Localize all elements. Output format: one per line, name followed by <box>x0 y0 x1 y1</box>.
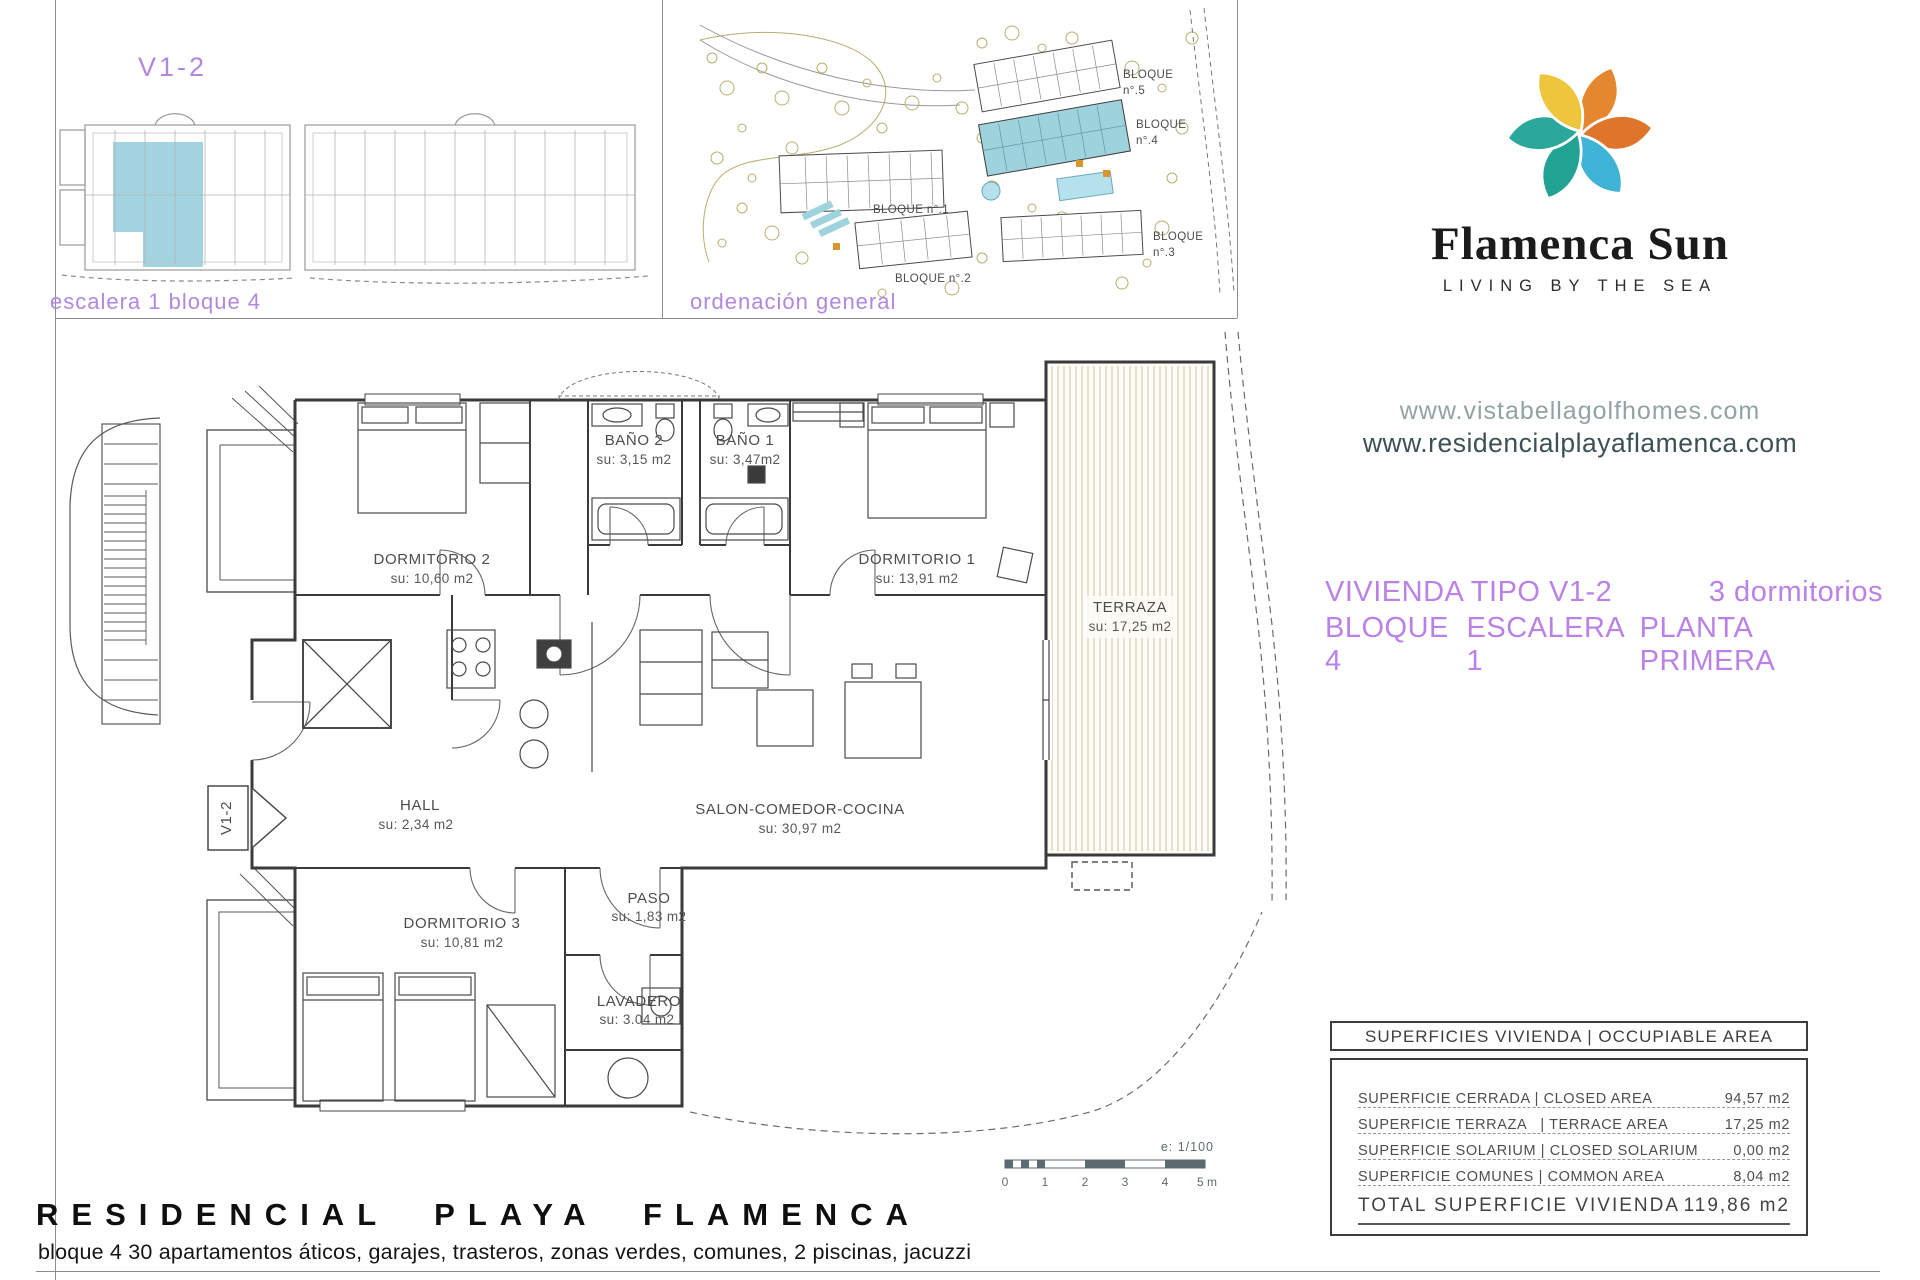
key-plan-caption: escalera 1 bloque 4 <box>50 289 261 315</box>
brand-tagline: LIVING BY THE SEA <box>1330 277 1830 296</box>
table-row: SUPERFICIE CERRADA | CLOSED AREA 94,57 m… <box>1358 1082 1790 1108</box>
total-label: TOTAL SUPERFICIE VIVIENDA <box>1358 1195 1680 1217</box>
row-value: 0,00 m2 <box>1733 1143 1790 1159</box>
scale-tick-0: 0 <box>1002 1175 1009 1189</box>
stairwell <box>70 418 160 724</box>
site-block3-num: n°.3 <box>1153 247 1175 259</box>
room-hall-name: HALL <box>400 797 440 814</box>
scale-tick-4: 4 <box>1162 1175 1169 1189</box>
room-salon-area: su: 30,97 m2 <box>759 821 842 836</box>
entrance-label: V1-2 <box>218 801 235 835</box>
brand-name: Flamenca Sun <box>1330 217 1830 271</box>
key-plan <box>60 114 648 283</box>
site-block5-label: BLOQUE <box>1123 69 1173 81</box>
row-label: SUPERFICIE TERRAZA | TERRACE AREA <box>1358 1117 1668 1133</box>
total-value: 119,86 m2 <box>1684 1195 1790 1217</box>
unit-bedrooms: 3 dormitorios <box>1709 576 1883 609</box>
room-dormitorio1-name: DORMITORIO 1 <box>859 551 976 568</box>
url-vistabella: www.vistabellagolfhomes.com <box>1330 397 1830 426</box>
row-value: 8,04 m2 <box>1733 1169 1790 1185</box>
plan-sheet: BLOQUE n°.5 BLOQUE n°.4 BLOQUE n°.3 BLOQ… <box>0 0 1920 1280</box>
url-residencial: www.residencialplayaflamenca.com <box>1330 428 1830 459</box>
website-links: www.vistabellagolfhomes.com www.residenc… <box>1330 397 1830 459</box>
project-title: RESIDENCIAL PLAYA FLAMENCA <box>36 1197 921 1233</box>
room-bano1-area: su: 3,47m2 <box>710 452 781 467</box>
door-swings <box>252 507 875 1005</box>
room-dormitorio2-name: DORMITORIO 2 <box>374 551 491 568</box>
table-total-row: TOTAL SUPERFICIE VIVIENDA 119,86 m2 <box>1358 1195 1790 1225</box>
balconies <box>207 386 298 1100</box>
unit-info-block: VIVIENDA TIPO V1-2 3 dormitorios BLOQUE … <box>1325 576 1883 678</box>
site-block-4-highlighted <box>979 100 1131 176</box>
room-paso-name: PASO <box>628 890 671 907</box>
row-label: SUPERFICIE CERRADA | CLOSED AREA <box>1358 1091 1653 1107</box>
light-shaft <box>303 640 391 728</box>
brand-block: Flamenca Sun LIVING BY THE SEA <box>1330 58 1830 296</box>
room-lavadero-name: LAVADERO <box>597 993 681 1010</box>
table-row: SUPERFICIE TERRAZA | TERRACE AREA 17,25 … <box>1358 1108 1790 1134</box>
row-value: 17,25 m2 <box>1725 1117 1790 1133</box>
row-label: SUPERFICIE SOLARIUM | CLOSED SOLARIUM <box>1358 1143 1698 1159</box>
site-block4-label: BLOQUE <box>1136 119 1186 131</box>
floor-plan-drawing: V1-2 DORMITORIO 2 su: 10,60 m2 BAÑO 2 su… <box>70 332 1286 1189</box>
site-block4-num: n°.4 <box>1136 135 1158 147</box>
room-terraza-name: TERRAZA <box>1093 599 1167 616</box>
scale-tick-1: 1 <box>1042 1175 1049 1189</box>
flamenca-sun-logo-icon <box>1505 58 1655 208</box>
site-block1-label: BLOQUE n°.1 <box>873 204 949 216</box>
unit-type-label: V1-2 <box>138 52 207 83</box>
room-dormitorio2-area: su: 10,60 m2 <box>391 571 474 586</box>
scale-tick-5: 5 m <box>1197 1175 1217 1189</box>
bay-arc <box>558 372 720 401</box>
site-plan-drawing: BLOQUE n°.5 BLOQUE n°.4 BLOQUE n°.3 BLOQ… <box>700 8 1234 297</box>
highlighted-unit <box>113 142 203 267</box>
entrance-marker: V1-2 <box>208 786 286 850</box>
row-value: 94,57 m2 <box>1725 1091 1790 1107</box>
row-label: SUPERFICIE COMUNES | COMMON AREA <box>1358 1169 1665 1185</box>
areas-table: SUPERFICIE CERRADA | CLOSED AREA 94,57 m… <box>1330 1058 1808 1236</box>
scale-label: e: 1/100 <box>1161 1140 1214 1154</box>
table-row: SUPERFICIE SOLARIUM | CLOSED SOLARIUM 0,… <box>1358 1134 1790 1160</box>
areas-table-header: SUPERFICIES VIVIENDA | OCCUPIABLE AREA <box>1330 1021 1808 1051</box>
site-block5-num: n°.5 <box>1123 85 1145 97</box>
scale-tick-3: 3 <box>1122 1175 1129 1189</box>
site-block3-label: BLOQUE <box>1153 231 1203 243</box>
table-row: SUPERFICIE COMUNES | COMMON AREA 8,04 m2 <box>1358 1160 1790 1186</box>
site-plan-caption: ordenación general <box>690 289 896 315</box>
unit-type: VIVIENDA TIPO V1-2 <box>1325 576 1612 609</box>
scale-tick-2: 2 <box>1082 1175 1089 1189</box>
room-paso-area: su: 1,83 m2 <box>612 909 687 924</box>
site-block-5 <box>974 40 1120 112</box>
unit-floor: PLANTA PRIMERA <box>1640 612 1883 678</box>
room-dormitorio3-area: su: 10,81 m2 <box>421 935 504 950</box>
room-terraza-area: su: 17,25 m2 <box>1089 619 1172 634</box>
site-block-3 <box>1001 210 1143 261</box>
room-bano2-area: su: 3,15 m2 <box>597 452 672 467</box>
site-block-2 <box>855 211 972 269</box>
unit-block: BLOQUE 4 <box>1325 612 1467 678</box>
site-boundary <box>1190 8 1234 295</box>
room-bano2-name: BAÑO 2 <box>605 432 664 449</box>
scale-bar: e: 1/100 0 1 2 3 4 5 m <box>1002 1140 1217 1189</box>
room-dormitorio1-area: su: 13,91 m2 <box>876 571 959 586</box>
project-subtitle: bloque 4 30 apartamentos áticos, garajes… <box>38 1240 971 1265</box>
lower-terrace <box>1072 862 1132 890</box>
unit-stair: ESCALERA 1 <box>1467 612 1640 678</box>
room-lavadero-area: su: 3.04 m2 <box>600 1012 675 1027</box>
room-dormitorio3-name: DORMITORIO 3 <box>404 915 521 932</box>
site-block2-label: BLOQUE n°.2 <box>895 273 971 285</box>
room-bano1-name: BAÑO 1 <box>716 432 775 449</box>
room-salon-name: SALON-COMEDOR-COCINA <box>695 801 905 818</box>
terrace-door <box>1040 640 1052 760</box>
room-hall-area: su: 2,34 m2 <box>379 817 454 832</box>
